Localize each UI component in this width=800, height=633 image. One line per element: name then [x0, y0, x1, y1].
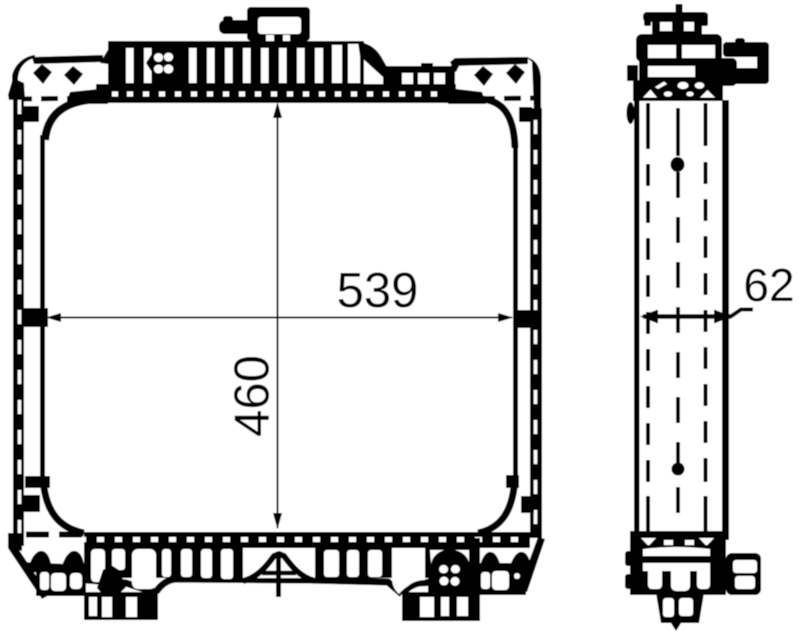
svg-text:62: 62: [743, 259, 794, 311]
svg-text:460: 460: [226, 355, 280, 437]
svg-text:539: 539: [337, 264, 419, 318]
